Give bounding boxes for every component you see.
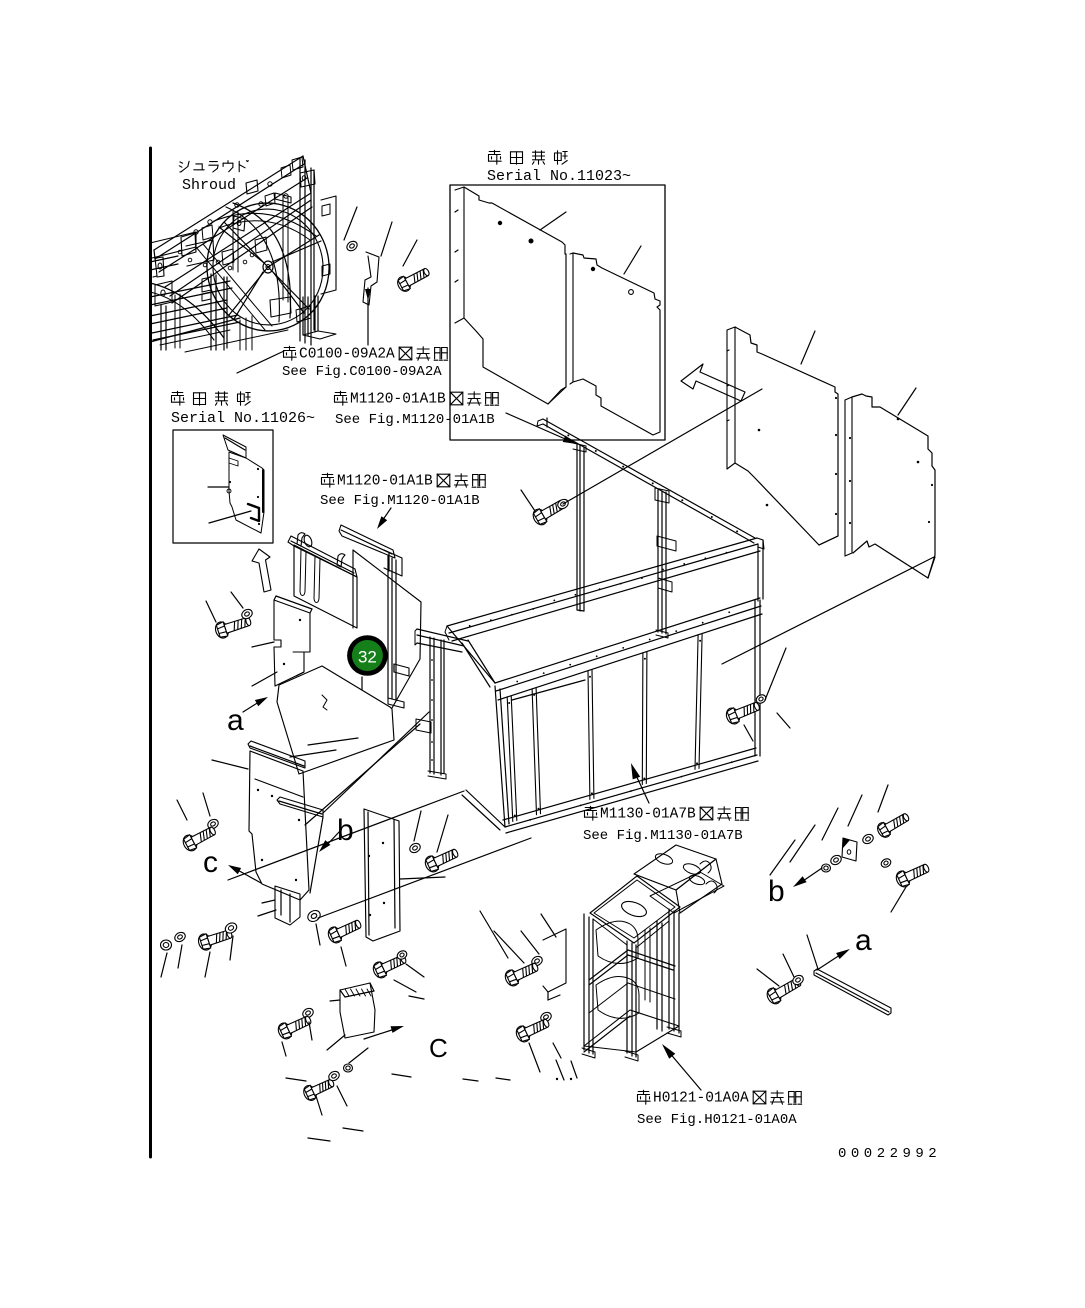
svg-text:M1130-01A7B: M1130-01A7B: [600, 807, 696, 823]
svg-text:See Fig.H0121-01A0A: See Fig.H0121-01A0A: [637, 1112, 797, 1128]
svg-text:See Fig.M1130-01A7B: See Fig.M1130-01A7B: [583, 828, 743, 844]
svg-text:b: b: [768, 875, 785, 908]
svg-text:See Fig.M1120-01A1B: See Fig.M1120-01A1B: [320, 493, 480, 509]
svg-text:See Fig.M1120-01A1B: See Fig.M1120-01A1B: [335, 412, 495, 428]
svg-text:Shroud: Shroud: [182, 177, 236, 194]
svg-text:Serial No.11026~: Serial No.11026~: [171, 410, 315, 427]
svg-text:a: a: [227, 704, 244, 737]
svg-text:c: c: [203, 846, 218, 879]
svg-text:b: b: [337, 814, 354, 847]
svg-text:C0100-09A2A: C0100-09A2A: [299, 347, 395, 363]
svg-text:C: C: [429, 1033, 448, 1063]
svg-text:Serial No.11023~: Serial No.11023~: [487, 168, 631, 185]
svg-text:M1120-01A1B: M1120-01A1B: [350, 392, 446, 408]
svg-text:00022992: 00022992: [838, 1146, 941, 1162]
svg-text:M1120-01A1B: M1120-01A1B: [337, 474, 433, 490]
svg-text:a: a: [855, 924, 872, 957]
svg-text:H0121-01A0A: H0121-01A0A: [653, 1091, 749, 1107]
svg-text:32: 32: [358, 648, 377, 667]
svg-text:See Fig.C0100-09A2A: See Fig.C0100-09A2A: [282, 364, 442, 380]
